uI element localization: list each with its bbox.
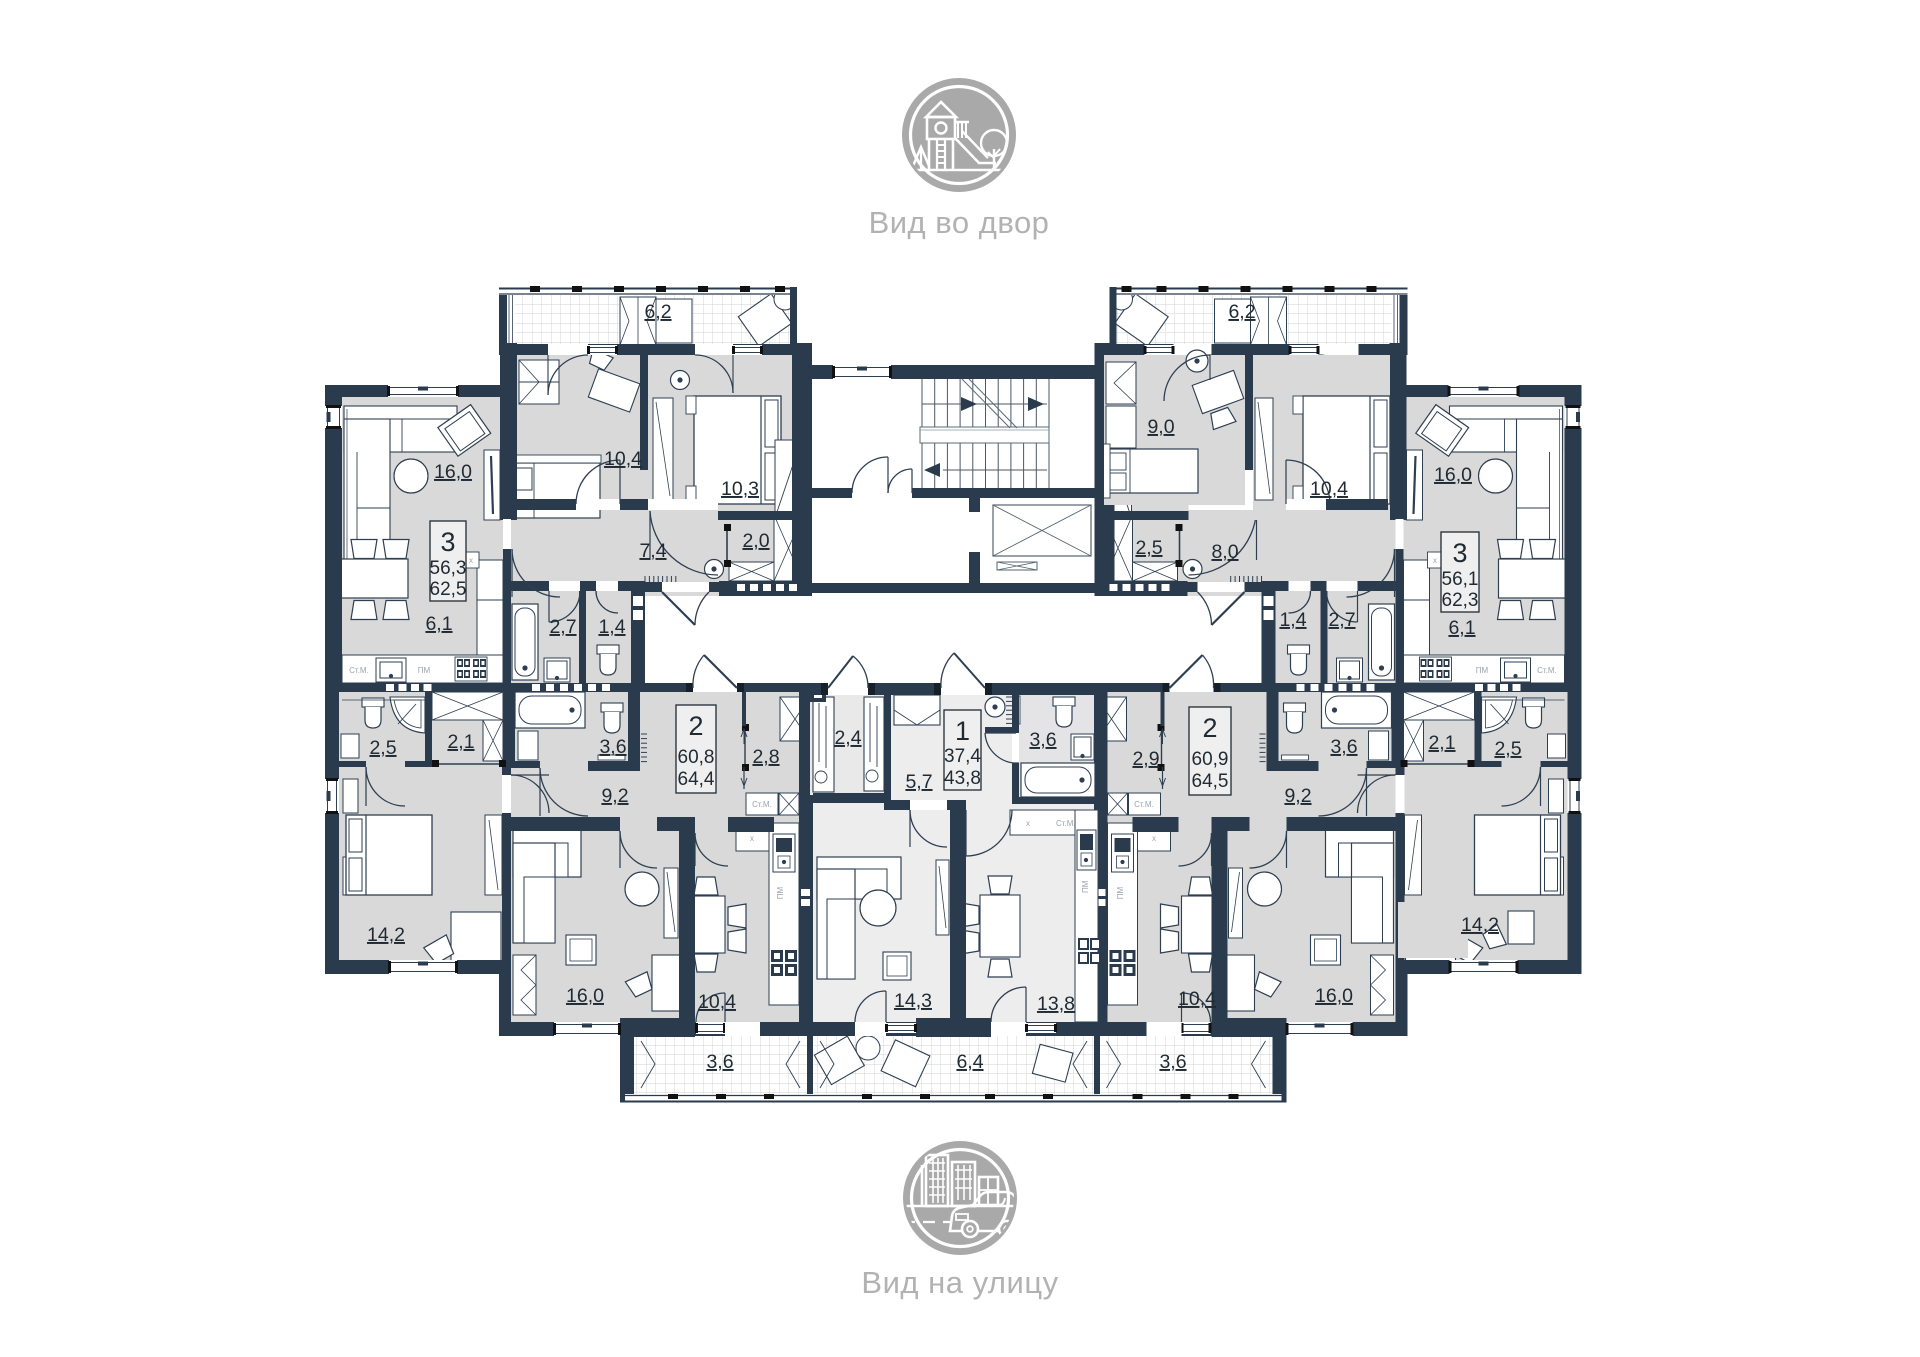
svg-text:x: x <box>750 834 754 843</box>
svg-text:10,4: 10,4 <box>1310 478 1348 500</box>
svg-text:2,1: 2,1 <box>1428 732 1455 754</box>
svg-text:16,0: 16,0 <box>1434 464 1472 486</box>
svg-text:x: x <box>1152 834 1156 843</box>
svg-text:10,4: 10,4 <box>604 448 642 470</box>
svg-text:Ст.М.: Ст.М. <box>1134 800 1154 809</box>
svg-text:ПМ: ПМ <box>1476 666 1489 675</box>
svg-text:9,0: 9,0 <box>1147 416 1174 438</box>
svg-text:2,9: 2,9 <box>1132 748 1159 770</box>
svg-text:16,0: 16,0 <box>1315 985 1353 1007</box>
svg-text:3,6: 3,6 <box>706 1051 733 1073</box>
svg-text:16,0: 16,0 <box>566 985 604 1007</box>
svg-text:6,4: 6,4 <box>956 1051 983 1073</box>
svg-text:2,5: 2,5 <box>1135 537 1162 559</box>
svg-text:Вид на улицу: Вид на улицу <box>861 1265 1058 1300</box>
svg-text:2: 2 <box>1202 713 1217 743</box>
svg-text:60,8: 60,8 <box>678 747 715 768</box>
svg-text:6,1: 6,1 <box>1448 617 1475 639</box>
svg-text:3: 3 <box>440 527 455 557</box>
svg-text:x: x <box>1026 819 1030 828</box>
svg-text:x: x <box>1433 556 1437 565</box>
svg-text:3,6: 3,6 <box>1330 736 1357 758</box>
svg-text:9,2: 9,2 <box>601 785 628 807</box>
svg-text:1: 1 <box>955 716 970 746</box>
svg-text:10,3: 10,3 <box>721 478 759 500</box>
svg-text:Ст.М.: Ст.М. <box>1056 819 1076 828</box>
svg-text:2,7: 2,7 <box>549 616 576 638</box>
svg-text:2,8: 2,8 <box>752 746 779 768</box>
svg-text:62,3: 62,3 <box>1442 590 1479 611</box>
svg-text:ПМ: ПМ <box>1116 886 1125 899</box>
svg-text:2,5: 2,5 <box>1494 738 1521 760</box>
svg-text:Ст.М.: Ст.М. <box>1537 666 1557 675</box>
svg-text:6,2: 6,2 <box>1228 301 1255 323</box>
svg-text:64,5: 64,5 <box>1192 771 1229 792</box>
svg-text:Ст.М.: Ст.М. <box>349 666 369 675</box>
svg-text:ПМ: ПМ <box>418 666 431 675</box>
svg-text:3,6: 3,6 <box>1029 729 1056 751</box>
svg-text:7,4: 7,4 <box>639 540 666 562</box>
svg-text:10,4: 10,4 <box>1178 988 1216 1010</box>
svg-text:6,1: 6,1 <box>425 613 452 635</box>
svg-text:64,4: 64,4 <box>678 769 715 790</box>
svg-text:60,9: 60,9 <box>1192 749 1229 770</box>
svg-text:3: 3 <box>1452 538 1467 568</box>
svg-text:6,2: 6,2 <box>644 301 671 323</box>
svg-text:62,5: 62,5 <box>430 579 467 600</box>
svg-text:16,0: 16,0 <box>434 461 472 483</box>
svg-text:2: 2 <box>688 711 703 741</box>
svg-text:56,3: 56,3 <box>430 558 467 579</box>
svg-text:1,4: 1,4 <box>598 616 625 638</box>
svg-text:2,4: 2,4 <box>834 727 861 749</box>
svg-text:Ст.М.: Ст.М. <box>752 800 772 809</box>
svg-text:1,4: 1,4 <box>1279 609 1306 631</box>
svg-text:2,7: 2,7 <box>1328 609 1355 631</box>
svg-text:13,8: 13,8 <box>1037 993 1075 1015</box>
svg-text:2,1: 2,1 <box>447 731 474 753</box>
svg-text:14,2: 14,2 <box>1461 914 1499 936</box>
svg-text:3,6: 3,6 <box>1159 1051 1186 1073</box>
svg-text:2,0: 2,0 <box>742 530 769 552</box>
svg-text:14,2: 14,2 <box>367 924 405 946</box>
svg-text:5,7: 5,7 <box>905 771 932 793</box>
svg-text:37,4: 37,4 <box>944 746 981 767</box>
svg-text:56,1: 56,1 <box>1442 569 1479 590</box>
svg-text:x: x <box>469 556 473 565</box>
svg-text:ПМ: ПМ <box>776 886 785 899</box>
svg-text:Вид во двор: Вид во двор <box>869 205 1050 240</box>
svg-text:8,0: 8,0 <box>1211 541 1238 563</box>
svg-text:9,2: 9,2 <box>1284 785 1311 807</box>
svg-text:2,5: 2,5 <box>369 737 396 759</box>
svg-text:ПМ: ПМ <box>1081 880 1090 893</box>
svg-text:14,3: 14,3 <box>894 990 932 1012</box>
svg-text:10,4: 10,4 <box>698 991 736 1013</box>
svg-text:3,6: 3,6 <box>599 736 626 758</box>
svg-text:43,8: 43,8 <box>944 768 981 789</box>
